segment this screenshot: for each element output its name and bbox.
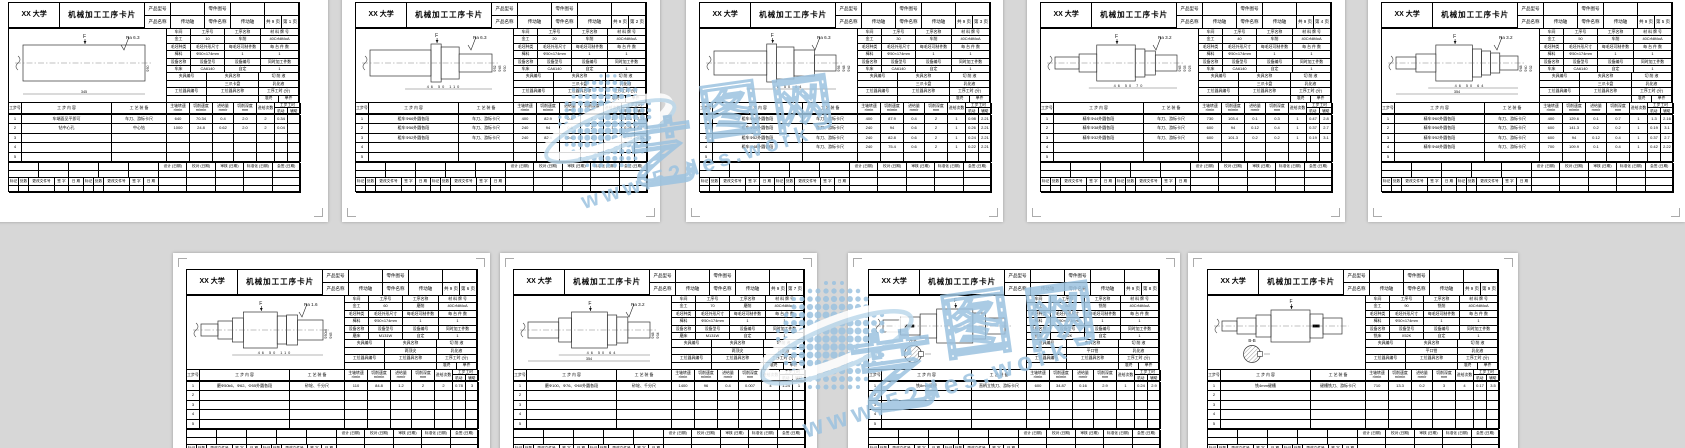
university-name: XX 大学 (356, 3, 407, 28)
footer-block: 设计 (日期)校对 (日期)审核 (日期)标准化 (日期)会签 (日期)标记处数… (514, 430, 804, 448)
step-param-value (695, 410, 718, 419)
info-row: 车床CA6140自定1 (858, 66, 990, 73)
step-time-aux-value (1487, 391, 1500, 400)
label-equip-model: 设备型号 (369, 326, 403, 333)
part-drawing-no-value (409, 270, 443, 283)
footer-blank-cell (1238, 430, 1268, 438)
info-row: 金工60磨削40CrNiMoA (345, 303, 477, 310)
step-row: 2钻中心孔中心钻100024.80.622.020.04 (9, 124, 299, 133)
col-spindle-speed-unit: r/min (521, 108, 530, 112)
revision-label: 更改文件号 (1477, 178, 1503, 186)
footer-blank-cell (130, 186, 144, 194)
step-equip-value: 车刀、游标卡尺 (112, 115, 167, 124)
footer-blank-cell (850, 178, 878, 186)
footer-blank-cell (1467, 186, 1477, 194)
footer-blank-cell (935, 178, 963, 186)
machine-time-label: 机动 (1648, 108, 1661, 113)
page-corner-mark (178, 258, 187, 267)
step-param-value: 240 (858, 124, 881, 133)
step-param-value: 1 (1289, 115, 1307, 124)
sign-label: 标准化 (日期) (1104, 430, 1132, 438)
label-part-name: 零件名称 (552, 16, 578, 29)
per-machine-value: 1 (608, 51, 646, 58)
total-pages: 共 9 页 (1464, 283, 1481, 296)
label-product-model: 产品型号 (145, 3, 171, 16)
footer-blank-cell (1477, 186, 1503, 194)
fixture-name-value: 两顶尖 (712, 348, 764, 355)
material-value: 40CrNiMoA (1634, 36, 1672, 43)
step-equip-value: 车刀、游标卡尺 (1144, 134, 1199, 143)
page-corner-mark (989, 208, 998, 217)
machine-time-label: 机动 (1135, 375, 1148, 380)
step-param-value: 0.2 (1607, 124, 1630, 133)
label-part-drawing-no: 零件图号 (1578, 3, 1604, 16)
label-op-no: 工序号 (191, 29, 225, 36)
workshop-value: 金工 (1540, 36, 1564, 43)
footer-blank-cell (778, 438, 806, 446)
footer-row: 设计 (日期)校对 (日期)审核 (日期)标准化 (日期)会签 (日期) (700, 163, 990, 171)
step-time-aux-value (793, 410, 806, 419)
page-corner-mark (1331, 208, 1340, 217)
document-page[interactable]: XX 大学机械加工工序卡片产品型号零件图号产品名称传动轴零件名称传动轴共 9 页… (686, 0, 1003, 222)
footer-blank-cell (989, 430, 1019, 438)
step-row: 2粗车Φ56外圆各段车刀、游标卡尺240940.6210.262.21 (700, 124, 990, 133)
label-tool-name: 工位器具名称 (1239, 88, 1291, 95)
col-spindle-speed: 主轴转速r/min (514, 103, 537, 114)
col-cutting-speed: 切削速度m/min (1050, 370, 1073, 381)
document-page[interactable]: XX 大学机械加工工序卡片产品型号零件图号产品名称传动轴零件名称传动轴共 9 页… (0, 0, 328, 222)
step-time-machine-value (622, 153, 635, 162)
step-param-value: 1 (1630, 143, 1648, 152)
part-drawing: FRa 6.346 50 110Φ52Φ45Φ30 (356, 29, 514, 102)
label-part-drawing-no: 零件图号 (1237, 3, 1263, 16)
step-time-machine-value (780, 391, 793, 400)
footer-blank-cell (620, 186, 648, 194)
step-param-value (948, 153, 966, 162)
sign-label: 校对 (日期) (1386, 430, 1414, 438)
page-number: 第 6 页 (460, 283, 477, 296)
label-fixture-name: 夹具名称 (1239, 73, 1291, 80)
step-equip-value: 车刀、游标卡尺 (1144, 124, 1199, 133)
label-workshop: 车间 (1199, 29, 1223, 36)
svg-text:F: F (771, 33, 774, 39)
label-blank-size: 毛坯外形尺寸 (191, 44, 225, 51)
equip-model-value: X52K (1051, 333, 1085, 340)
label-material: 材 料 牌 号 (766, 296, 804, 303)
step-time-machine-value (1474, 401, 1487, 410)
step-param-value: 94 (1222, 124, 1245, 133)
info-row: 车间工序号工序名称材 料 牌 号 (514, 29, 646, 36)
step-no-value: 5 (356, 153, 369, 162)
step-content-value (1395, 153, 1485, 162)
card-middle: FRa 3.246 50 64354Φ48Φ34车间工序号工序名称材 料 牌 号… (514, 296, 804, 370)
label-equip-model: 设备型号 (696, 326, 730, 333)
product-name-value: 传动轴 (349, 283, 383, 296)
col-passes: 进给次数 (948, 103, 966, 114)
step-no-value: 1 (356, 115, 369, 124)
step-content-value (527, 420, 617, 429)
sign-label: 设计 (日期) (850, 163, 878, 171)
col-cutting-speed: 切削速度m/min (1222, 103, 1245, 114)
step-no-value: 4 (700, 143, 713, 152)
step-equip-value: 键槽铣刀、游标卡尺 (1311, 382, 1366, 391)
label-op-name: 工序名称 (403, 296, 439, 303)
simul-value: 1 (952, 66, 990, 73)
label-material: 材 料 牌 号 (608, 29, 646, 36)
col-feed-rate: 进给量mm/r (904, 103, 925, 114)
step-equip-value: 车刀、游标卡尺 (1144, 115, 1199, 124)
svg-text:F: F (1290, 299, 1293, 305)
equip-name-value: 车床 (1199, 66, 1223, 73)
sign-label: 设计 (日期) (1019, 430, 1047, 438)
step-param-value (1199, 143, 1222, 152)
step-param-value: 1 (1630, 134, 1648, 143)
step-row: 2精车Φ56外圆各段车刀、游标卡尺600141.30.20.210.193.1 (1382, 124, 1672, 133)
col-passes: 进给次数 (1117, 370, 1135, 381)
step-no-value: 1 (1208, 382, 1221, 391)
step-param-value: 82.8 (881, 134, 904, 143)
step-equip-value (1144, 143, 1199, 152)
footer-blank-cell (1589, 186, 1617, 194)
blank-per-value: 1 (730, 318, 766, 325)
col-step-no: 工步号 (356, 103, 369, 114)
step-param-value: 94 (537, 124, 560, 133)
step-param-value: 240 (858, 143, 881, 152)
footer-blank-cell (277, 438, 307, 446)
label-equip-no: 设备编号 (916, 59, 952, 66)
step-param-value (695, 401, 718, 410)
step-param-value (1245, 153, 1266, 162)
steps-header: 工步号工 步 内 容工 艺 装 备主轴转速r/min切削速度m/min进给量mm… (187, 370, 477, 382)
label-blank-size: 毛坯外形尺寸 (538, 44, 572, 51)
document-page[interactable]: XX 大学机械加工工序卡片产品型号零件图号产品名称传动轴零件名称传动轴共 9 页… (848, 253, 1180, 448)
product-model-value (1544, 3, 1578, 16)
step-no-value: 1 (1382, 115, 1395, 124)
label-fixture-no: 夹具编号 (167, 73, 207, 80)
step-content-value (22, 134, 112, 143)
page-corner-mark (1032, 208, 1041, 217)
step-no-value: 2 (1382, 124, 1395, 133)
step-no-value: 2 (9, 124, 22, 133)
step-param-value: 1 (1630, 124, 1648, 133)
col-passes: 进给次数 (762, 370, 780, 381)
step-param-value: 0.6 (560, 124, 581, 133)
col-cutting-speed-unit: m/min (1569, 108, 1580, 112)
step-param-value (234, 134, 257, 143)
footer-blank-cell (964, 178, 992, 186)
label-prep: 准终 (259, 96, 279, 103)
step-param-value (368, 410, 391, 419)
step-equip-value: 砂轮、千分尺 (617, 382, 672, 391)
part-drawing: FRa 3.246 50 64354Φ48Φ34 (514, 296, 672, 369)
step-content-value (22, 153, 112, 162)
label-per-machine: 每 台 件 数 (1121, 311, 1159, 318)
col-step-equip: 工 艺 装 备 (290, 370, 345, 381)
step-row: 2粗车Φ56外圆各段车刀、游标卡尺240940.6210.262.21 (356, 124, 646, 133)
col-step-time: 工步工时机动辅助 (966, 103, 992, 114)
step-param-value (881, 153, 904, 162)
info-row: 夹具编号夹具名称切 削 液 (1199, 73, 1331, 80)
part-drawing: FB-B (1208, 296, 1366, 369)
tool-no-value (514, 96, 554, 103)
label-workshop: 车间 (1540, 29, 1564, 36)
equip-model-value: CA6140 (882, 66, 916, 73)
step-param-value (514, 153, 537, 162)
step-time-machine-value: 0.26 (966, 124, 979, 133)
footer-row: 设计 (日期)校对 (日期)审核 (日期)标准化 (日期)会签 (日期) (356, 163, 646, 171)
footer-blank-cell (9, 171, 39, 179)
step-time-machine-value (1307, 153, 1320, 162)
step-param-value (1366, 410, 1389, 419)
label-blank-type: 毛坯种类 (672, 311, 696, 318)
label-prep: 准终 (606, 96, 626, 103)
footer-blank-cell (506, 171, 534, 179)
tool-name-value (1406, 363, 1458, 370)
label-per-machine: 每 台 件 数 (439, 311, 477, 318)
footer-blank-cell (273, 186, 301, 194)
revision-label: 标记 (1041, 178, 1051, 186)
footer-blank-cell (591, 171, 619, 179)
info-row: 车间工序号工序名称材 料 牌 号 (1540, 29, 1672, 36)
revision-label: 签 字 (821, 178, 835, 186)
part-drawing-no-value (231, 3, 265, 16)
step-param-value: 240 (858, 134, 881, 143)
step-equip-value: 车刀、游标卡尺 (1485, 134, 1540, 143)
document-page[interactable]: XX 大学机械加工工序卡片产品型号零件图号产品名称传动轴零件名称传动轴共 9 页… (173, 253, 490, 448)
footer-blank-cell (273, 171, 301, 179)
footer-blank-cell (878, 178, 906, 186)
step-param-value: 1 (1117, 382, 1135, 391)
label-fixture-no: 夹具编号 (672, 340, 712, 347)
step-row: 5 (356, 153, 646, 162)
step-param-value: 0.4 (1607, 143, 1630, 152)
step-param-value (391, 410, 412, 419)
col-cut-depth-unit: mm (747, 375, 753, 379)
svg-text:46 50 64: 46 50 64 (1455, 84, 1486, 88)
label-blank-per: 每毛坯可制件数 (403, 311, 439, 318)
step-row: 3 (869, 401, 1159, 410)
label-blank-type: 毛坯种类 (858, 44, 882, 51)
svg-text:46 50 110: 46 50 110 (427, 85, 462, 89)
step-param-value (167, 134, 190, 143)
equip-no-value: 自定 (1424, 333, 1460, 340)
label-simul: 同时加工件数 (439, 326, 477, 333)
label-fixture-no: 夹具编号 (1540, 73, 1580, 80)
step-param-value (1456, 391, 1474, 400)
revision-label: 签 字 (1503, 178, 1517, 186)
footer-blank-cell (29, 186, 55, 194)
equip-model-value: M131W (369, 333, 403, 340)
info-row: 准终单件 (345, 363, 477, 370)
svg-text:46 50 110: 46 50 110 (258, 351, 293, 355)
step-content-value (369, 153, 459, 162)
step-param-value (1456, 410, 1474, 419)
label-blank-per: 每毛坯可制件数 (1424, 311, 1460, 318)
step-param-value: 2 (925, 124, 948, 133)
info-row: 车间工序号工序名称材 料 牌 号 (167, 29, 299, 36)
step-time-aux-value (288, 143, 301, 152)
step-param-value (1073, 410, 1094, 419)
page-corner-mark (1671, 208, 1680, 217)
footer-blank-cell (69, 171, 99, 179)
step-param-value (1412, 410, 1433, 419)
sign-label: 审核 (日期) (394, 430, 422, 438)
document-page[interactable]: XX 大学机械加工工序卡片产品型号零件图号产品名称传动轴零件名称传动轴共 9 页… (1368, 0, 1685, 222)
step-param-value (1027, 420, 1050, 429)
info-row: 设备名称设备型号设备编号同时加工件数 (514, 59, 646, 66)
per-machine-value: 1 (439, 318, 477, 325)
total-pages: 共 9 页 (1297, 16, 1314, 29)
label-equip-name: 设备名称 (1027, 326, 1051, 333)
revision-label: 日 期 (760, 178, 775, 186)
svg-text:Φ32: Φ32 (1529, 65, 1533, 72)
footer-blank-cell (1472, 438, 1500, 446)
step-row: 1精车Φ44外圆各段车刀、游标卡尺730103.40.10.310.472.8 (1041, 115, 1331, 124)
step-param-value: 0.3 (1266, 115, 1289, 124)
fixture-no-value (1027, 348, 1067, 355)
step-time-machine-value (1474, 420, 1487, 429)
footer-row (1382, 171, 1672, 179)
label-blank-per: 每毛坯可制件数 (572, 44, 608, 51)
col-cut-depth: 切削深度mm (412, 370, 435, 381)
card-middle: FRa 3.246 50 70Φ45Φ35Φ25车间工序号工序名称材 料 牌 号… (1041, 29, 1331, 103)
blank-per-value: 1 (916, 51, 952, 58)
equip-name-value: 车床 (167, 66, 191, 73)
document-page[interactable]: XX 大学机械加工工序卡片产品型号零件图号产品名称传动轴零件名称传动轴共 9 页… (500, 253, 817, 448)
simul-value: 1 (1121, 333, 1159, 340)
col-cut-depth: 切削深度mm (1266, 103, 1289, 114)
svg-text:46 50 70: 46 50 70 (1114, 84, 1145, 88)
footer-blank-cell (591, 186, 619, 194)
footer-blank-cell (534, 171, 562, 179)
page-corner-mark (476, 258, 485, 267)
step-param-value (213, 134, 234, 143)
label-blank-per: 每毛坯可制件数 (1598, 44, 1634, 51)
svg-text:Ra 3.2: Ra 3.2 (1499, 35, 1513, 40)
step-time-aux-value: 2.16 (1661, 115, 1674, 124)
coolant-value: 乳化液 (1458, 348, 1498, 355)
op-no-value: 60 (369, 303, 403, 310)
page-corner-mark (347, 208, 356, 217)
revision-label: 处数 (441, 178, 451, 186)
fixture-name-value: 平口钳 (1067, 348, 1119, 355)
footer-blank-cell (563, 186, 591, 194)
step-row: 4 (356, 143, 646, 152)
label-per-machine: 每 台 件 数 (1460, 311, 1498, 318)
label-per-machine: 每 台 件 数 (261, 44, 299, 51)
label-fixture-name: 夹具名称 (385, 340, 437, 347)
label-unit: 单件 (457, 363, 477, 370)
label-unit: 单件 (784, 363, 804, 370)
col-spindle-speed: 主轴转速r/min (672, 370, 695, 381)
document-page[interactable]: XX 大学机械加工工序卡片产品型号零件图号产品名称传动轴零件名称传动轴共 9 页… (342, 0, 660, 222)
footer-blank-cell (935, 171, 963, 179)
document-page[interactable]: XX 大学机械加工工序卡片产品型号零件图号产品名称传动轴零件名称传动轴共 9 页… (1027, 0, 1345, 222)
step-param-value: 75.4 (881, 143, 904, 152)
svg-text:Φ25: Φ25 (1188, 65, 1192, 72)
step-param-value (1117, 391, 1135, 400)
tool-name-value (1067, 363, 1119, 370)
label-fixture-no: 夹具编号 (1027, 340, 1067, 347)
footer-blank-cell (1276, 178, 1304, 186)
steps-table: 工步号工 步 内 容工 艺 装 备主轴转速r/min切削速度m/min进给量mm… (9, 103, 299, 163)
step-time-machine-value: 0.24 (1135, 382, 1148, 391)
revision-label: 更改文件号 (1136, 178, 1162, 186)
label-equip-name: 设备名称 (514, 59, 538, 66)
revision-label: 处数 (1051, 178, 1061, 186)
info-row: 设备名称设备型号设备编号同时加工件数 (345, 326, 477, 333)
document-page[interactable]: XX 大学机械加工工序卡片产品型号零件图号产品名称传动轴零件名称传动轴共 9 页… (1188, 253, 1518, 448)
label-unit: 单件 (970, 96, 990, 103)
footer-blank-cell (1161, 163, 1191, 171)
step-content-value: 钻中心孔 (22, 124, 112, 133)
footer-block: 设计 (日期)校对 (日期)审核 (日期)标准化 (日期)会签 (日期)标记处数… (700, 163, 990, 193)
aux-time-label: 辅助 (1320, 108, 1332, 113)
label-blank-size: 毛坯外形尺寸 (1564, 44, 1598, 51)
step-time-aux-value (1661, 153, 1674, 162)
info-row: 车床CA6140自定1 (514, 66, 646, 73)
blank-per-value: 1 (1257, 51, 1293, 58)
part-name-value: 传动轴 (1430, 283, 1464, 296)
op-no-value: 30 (882, 36, 916, 43)
sign-label: 设计 (日期) (664, 430, 692, 438)
col-cut-depth-unit: mm (242, 108, 248, 112)
sign-label: 审核 (日期) (563, 163, 591, 171)
footer-blank-cell (1589, 178, 1617, 186)
step-content-value (1221, 420, 1311, 429)
step-param-value: 240 (514, 134, 537, 143)
svg-text:Φ50k6: Φ50k6 (324, 329, 328, 339)
label-op-time: 工序工时 (分) (606, 88, 646, 95)
step-param-value: 0.12 (1586, 134, 1607, 143)
simul-value: 1 (1460, 333, 1498, 340)
label-product-model: 产品型号 (650, 270, 676, 283)
step-row: 3精车Φ32外圆各段车刀、游标卡尺600101.30.20.210.193.1 (1041, 134, 1331, 143)
footer-blank-cell (775, 186, 785, 194)
step-param-value (1630, 153, 1648, 162)
footer-blank-cell (506, 186, 534, 194)
label-fixture-name: 夹具名称 (1406, 340, 1458, 347)
step-row: 5 (9, 153, 299, 162)
footer-blank-cell (700, 171, 730, 179)
machine-time-label: 机动 (1474, 375, 1487, 380)
blank-type-value: 棒料 (1540, 51, 1564, 58)
equip-no-value: 自定 (572, 66, 608, 73)
per-machine-value: 1 (952, 51, 990, 58)
step-param-value (1094, 401, 1117, 410)
part-name-value: 传动轴 (231, 16, 265, 29)
step-content-value: 精车Φ32外圆各段 (1054, 134, 1144, 143)
info-row: 工位器具编号工位器具名称工序工时 (分) (1366, 355, 1498, 362)
step-param-value (1540, 153, 1563, 162)
step-param-value (257, 143, 275, 152)
tool-no-value (1027, 363, 1067, 370)
label-fixture-no: 夹具编号 (1366, 340, 1406, 347)
step-param-value: 2 (412, 382, 435, 391)
label-op-no: 工序号 (1051, 296, 1085, 303)
col-feed-rate-unit: mm/r (219, 108, 228, 112)
product-model-value (1031, 270, 1065, 283)
step-param-value: 34.87 (1050, 382, 1073, 391)
blank-size-value: Φ50×174mm (191, 51, 225, 58)
step-no-value: 5 (1041, 153, 1054, 162)
card-title-band: XX 大学机械加工工序卡片产品型号零件图号产品名称传动轴零件名称传动轴共 9 页… (1041, 3, 1331, 29)
col-step-no: 工步号 (700, 103, 713, 114)
step-time-aux-value: 3.1 (1661, 124, 1674, 133)
step-param-value (537, 153, 560, 162)
info-row: 平口钳乳化液 (1366, 348, 1498, 355)
footer-blank-cell (760, 163, 790, 171)
